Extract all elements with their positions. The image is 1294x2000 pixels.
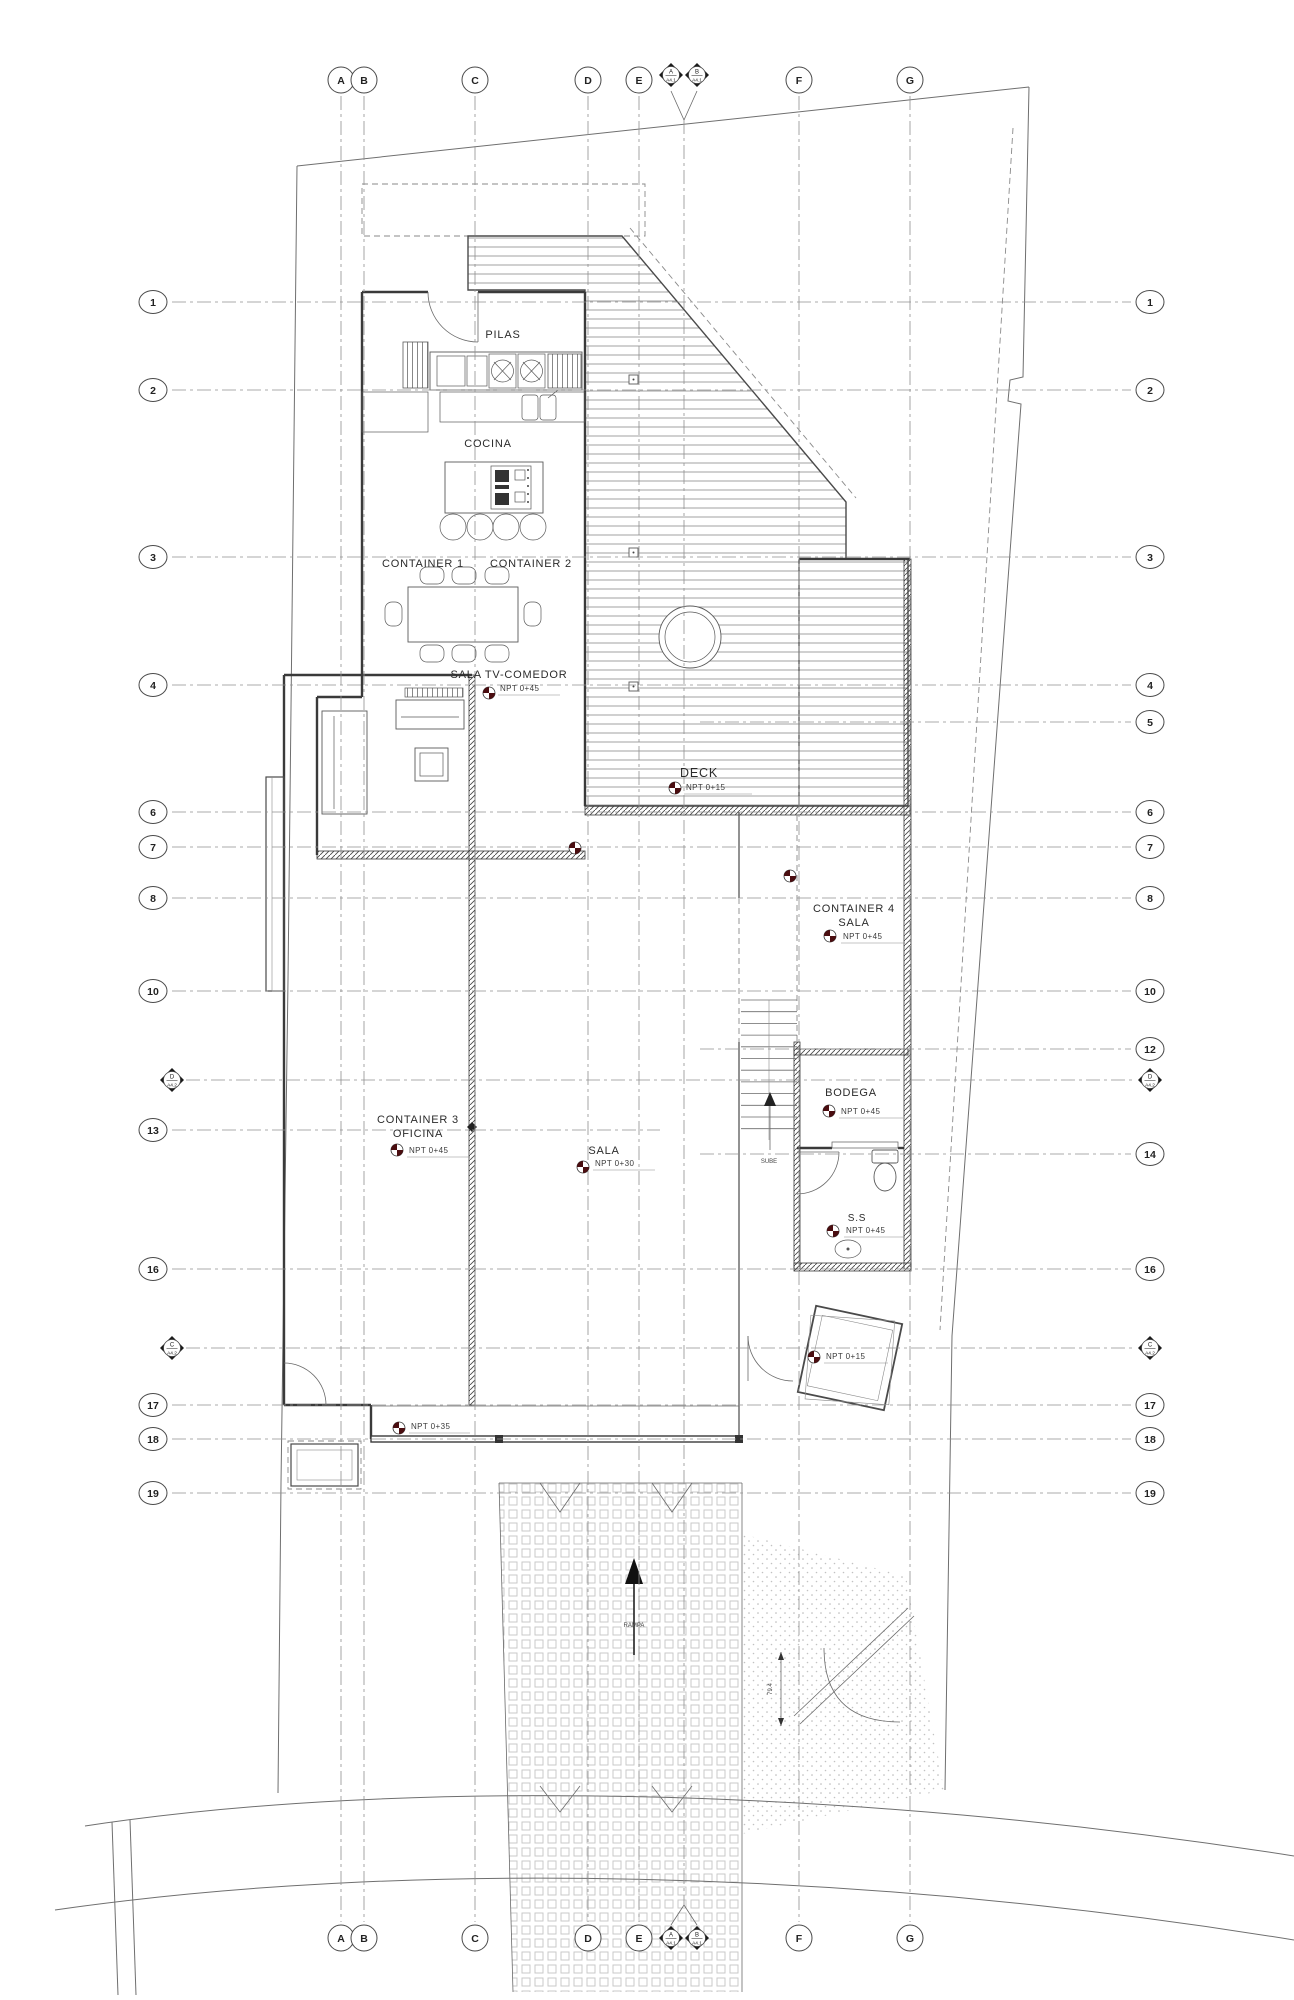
room-label-sala: SALA bbox=[588, 1145, 619, 1157]
svg-text:D: D bbox=[584, 1933, 592, 1945]
room-label-container1: CONTAINER 1 bbox=[382, 558, 464, 570]
grid-bubble-1-right: 1 bbox=[1136, 291, 1164, 314]
grid-bubble-19-left: 19 bbox=[139, 1482, 167, 1505]
island-stools bbox=[440, 514, 546, 540]
svg-text:G: G bbox=[906, 75, 914, 87]
svg-text:2: 2 bbox=[150, 385, 156, 397]
grid-bubble-6-left: 6 bbox=[139, 801, 167, 824]
npt-level-icon bbox=[784, 870, 796, 882]
section-marker-B-top: BA4.1 bbox=[685, 63, 709, 87]
label-sube: SUBE bbox=[761, 1159, 777, 1165]
sofa-long bbox=[322, 711, 367, 814]
section-marker-D-left: DA4.2 bbox=[160, 1068, 184, 1092]
npt-level-icon bbox=[824, 930, 836, 942]
dining-table bbox=[408, 587, 518, 642]
sofa-short bbox=[396, 700, 464, 729]
wall-hatched-deck-south bbox=[585, 806, 910, 815]
svg-text:12: 12 bbox=[1144, 1044, 1156, 1056]
svg-text:G: G bbox=[906, 1933, 914, 1945]
svg-text:A4.1: A4.1 bbox=[666, 1941, 676, 1947]
npt-bodega: NPT 0+45 bbox=[841, 1107, 880, 1116]
grid-bubble-2-left: 2 bbox=[139, 379, 167, 402]
grid-bubble-16-right: 16 bbox=[1136, 1258, 1164, 1281]
svg-text:A4.1: A4.1 bbox=[692, 1941, 702, 1947]
bath-sink bbox=[835, 1240, 861, 1258]
grid-bubble-E-bottom: E bbox=[626, 1925, 652, 1951]
svg-text:7: 7 bbox=[1147, 842, 1153, 854]
svg-text:F: F bbox=[796, 75, 803, 87]
npt-vestibule: NPT 0+35 bbox=[411, 1422, 450, 1431]
grid-bubble-10-right: 10 bbox=[1136, 980, 1164, 1003]
grid-bubble-14-right: 14 bbox=[1136, 1143, 1164, 1166]
grid-bubble-2-right: 2 bbox=[1136, 379, 1164, 402]
npt-level-icon bbox=[391, 1144, 403, 1156]
section-marker-A-top: AA4.1 bbox=[659, 63, 683, 87]
svg-text:7: 7 bbox=[150, 842, 156, 854]
grid-bubble-3-right: 3 bbox=[1136, 546, 1164, 569]
svg-text:3: 3 bbox=[150, 552, 156, 564]
grid-bubble-19-right: 19 bbox=[1136, 1482, 1164, 1505]
svg-text:5: 5 bbox=[1147, 717, 1153, 729]
entry-porch bbox=[291, 1444, 358, 1486]
svg-text:A4.2: A4.2 bbox=[1145, 1083, 1155, 1089]
svg-text:A4.1: A4.1 bbox=[692, 78, 702, 84]
svg-text:A: A bbox=[669, 70, 673, 76]
grid-bubble-7-right: 7 bbox=[1136, 836, 1164, 859]
grid-bubble-C-bottom: C bbox=[462, 1925, 488, 1951]
grid-bubble-D-top: D bbox=[575, 67, 601, 93]
grid-bubble-8-right: 8 bbox=[1136, 887, 1164, 910]
door-arc-office bbox=[284, 1363, 326, 1405]
svg-text:10: 10 bbox=[1144, 986, 1156, 998]
svg-text:19: 19 bbox=[1144, 1488, 1156, 1500]
svg-text:A: A bbox=[669, 1933, 673, 1939]
svg-text:4: 4 bbox=[1147, 680, 1153, 692]
svg-text:3: 3 bbox=[1147, 552, 1153, 564]
svg-text:A4.2: A4.2 bbox=[1145, 1351, 1155, 1357]
section-marker-D-right: DA4.2 bbox=[1138, 1068, 1162, 1092]
svg-text:8: 8 bbox=[150, 893, 156, 905]
wall-hatched-south bbox=[317, 851, 585, 859]
office-block bbox=[266, 675, 477, 1486]
dish-rack bbox=[548, 354, 581, 388]
svg-text:10: 10 bbox=[147, 986, 159, 998]
wall-c-hatched bbox=[469, 675, 475, 1405]
door-arc-kitchen bbox=[428, 292, 478, 342]
svg-text:8: 8 bbox=[1147, 893, 1153, 905]
room-label-container4: CONTAINER 4 bbox=[813, 903, 895, 915]
grid-bubble-6-right: 6 bbox=[1136, 801, 1164, 824]
bodega-top-wall bbox=[794, 1049, 908, 1055]
svg-text:A4.2: A4.2 bbox=[167, 1351, 177, 1357]
room-label-cocina: COCINA bbox=[464, 438, 512, 450]
grid-bubble-A-bottom: A bbox=[328, 1925, 354, 1951]
section-marker-C-right: CA4.2 bbox=[1138, 1336, 1162, 1360]
staircase bbox=[741, 1000, 797, 1140]
label-rampa: RAMPA bbox=[624, 1623, 645, 1629]
svg-text:B: B bbox=[360, 1933, 368, 1945]
ss-south-wall bbox=[794, 1263, 911, 1271]
room-label-deck: DECK bbox=[680, 766, 718, 780]
floor-plan: AABBCCDDEEFFGG11223344566778810101213141… bbox=[0, 0, 1294, 2000]
svg-text:17: 17 bbox=[147, 1400, 159, 1412]
npt-level-icon bbox=[808, 1351, 820, 1363]
npt-sala-tv: NPT 0+45 bbox=[500, 684, 539, 693]
svg-text:18: 18 bbox=[147, 1434, 159, 1446]
svg-text:D: D bbox=[1148, 1075, 1153, 1081]
grid-bubble-3-left: 3 bbox=[139, 546, 167, 569]
svg-text:19: 19 bbox=[147, 1488, 159, 1500]
window-band bbox=[405, 688, 463, 697]
svg-text:E: E bbox=[635, 1933, 642, 1945]
svg-text:B: B bbox=[695, 1933, 699, 1939]
svg-text:A4.2: A4.2 bbox=[167, 1083, 177, 1089]
npt-level-icon bbox=[393, 1422, 405, 1434]
svg-text:14: 14 bbox=[1144, 1149, 1156, 1161]
door-arc-entry bbox=[748, 1336, 793, 1381]
svg-text:B: B bbox=[695, 70, 699, 76]
dining-set bbox=[385, 567, 541, 662]
counter-left bbox=[362, 392, 428, 432]
room-label-container3-sub: OFICINA bbox=[393, 1128, 443, 1140]
grid-bubble-B-top: B bbox=[351, 67, 377, 93]
grid-bubble-17-left: 17 bbox=[139, 1394, 167, 1417]
room-label-container3: CONTAINER 3 bbox=[377, 1114, 459, 1126]
npt-ss: NPT 0+45 bbox=[846, 1226, 885, 1235]
grid-bubble-10-left: 10 bbox=[139, 980, 167, 1003]
npt-container3: NPT 0+45 bbox=[409, 1146, 448, 1155]
npt-entry: NPT 0+15 bbox=[826, 1352, 865, 1361]
svg-text:1: 1 bbox=[150, 297, 156, 309]
grid-bubble-1-left: 1 bbox=[139, 291, 167, 314]
grid-bubble-16-left: 16 bbox=[139, 1258, 167, 1281]
bodega-door bbox=[832, 1142, 898, 1148]
grid-bubble-8-left: 8 bbox=[139, 887, 167, 910]
grid-bubble-F-bottom: F bbox=[786, 1925, 812, 1951]
grid-bubble-5-right: 5 bbox=[1136, 711, 1164, 734]
porch-outline bbox=[288, 1441, 361, 1489]
kitchen-island bbox=[445, 462, 543, 513]
sink-basin-2 bbox=[540, 395, 556, 420]
npt-level-icon bbox=[577, 1161, 589, 1173]
svg-text:4: 4 bbox=[150, 680, 156, 692]
grid-bubble-F-top: F bbox=[786, 67, 812, 93]
grid-bubble-18-right: 18 bbox=[1136, 1428, 1164, 1451]
npt-level-icon bbox=[827, 1225, 839, 1237]
npt-level-icon bbox=[823, 1105, 835, 1117]
svg-text:2: 2 bbox=[1147, 385, 1153, 397]
svg-text:16: 16 bbox=[147, 1264, 159, 1276]
grid-bubble-E-top: E bbox=[626, 67, 652, 93]
driveway bbox=[499, 1483, 742, 1992]
fridge bbox=[403, 342, 428, 388]
side-bay bbox=[266, 777, 284, 991]
svg-text:F: F bbox=[796, 1933, 803, 1945]
wall-tag bbox=[467, 1122, 477, 1132]
room-label-pilas: PILAS bbox=[485, 329, 520, 341]
grid-bubble-4-right: 4 bbox=[1136, 674, 1164, 697]
deck-floor bbox=[468, 236, 908, 806]
svg-text:1: 1 bbox=[1147, 297, 1153, 309]
svg-text:D: D bbox=[584, 75, 592, 87]
npt-level-icon bbox=[669, 782, 681, 794]
sink-basin-1 bbox=[522, 395, 538, 420]
grid-bubble-A-top: A bbox=[328, 67, 354, 93]
room-label-bodega: BODEGA bbox=[825, 1087, 877, 1099]
section-marker-C-left: CA4.2 bbox=[160, 1336, 184, 1360]
grid-bubble-13-left: 13 bbox=[139, 1119, 167, 1142]
toilet bbox=[872, 1150, 898, 1191]
up-arrow-icon bbox=[764, 1092, 776, 1106]
grid-bubble-D-bottom: D bbox=[575, 1925, 601, 1951]
room-label-container4-sub: SALA bbox=[838, 917, 869, 929]
room-label-sala-tv: SALA TV-COMEDOR bbox=[451, 669, 568, 681]
grid-bubble-G-top: G bbox=[897, 67, 923, 93]
grid-bubble-12-right: 12 bbox=[1136, 1038, 1164, 1061]
npt-container4: NPT 0+45 bbox=[843, 932, 882, 941]
svg-text:17: 17 bbox=[1144, 1400, 1156, 1412]
svg-text:D: D bbox=[170, 1075, 175, 1081]
svg-text:13: 13 bbox=[147, 1125, 159, 1137]
svg-text:C: C bbox=[471, 1933, 479, 1945]
setback-line bbox=[940, 128, 1013, 1330]
door-arc-ss bbox=[797, 1152, 839, 1194]
svg-text:E: E bbox=[635, 75, 642, 87]
svg-text:A: A bbox=[337, 75, 345, 87]
npt-sala: NPT 0+30 bbox=[595, 1159, 634, 1168]
stair-arrow bbox=[764, 1092, 776, 1150]
grid-bubble-G-bottom: G bbox=[897, 1925, 923, 1951]
svg-text:B: B bbox=[360, 75, 368, 87]
grid-bubble-C-top: C bbox=[462, 67, 488, 93]
counter-sink-band bbox=[440, 392, 585, 422]
deck-tub bbox=[659, 606, 721, 668]
room-label-container2: CONTAINER 2 bbox=[490, 558, 572, 570]
svg-text:C: C bbox=[471, 75, 479, 87]
deck-area bbox=[468, 236, 908, 806]
tv-lounge bbox=[322, 700, 464, 814]
svg-text:C: C bbox=[1148, 1343, 1153, 1349]
svg-text:C: C bbox=[170, 1343, 175, 1349]
grid-bubble-4-left: 4 bbox=[139, 674, 167, 697]
svg-text:18: 18 bbox=[1144, 1434, 1156, 1446]
label-dimension: 79.4 bbox=[768, 1683, 774, 1695]
svg-text:6: 6 bbox=[1147, 807, 1153, 819]
svg-text:A: A bbox=[337, 1933, 345, 1945]
npt-level-icon bbox=[483, 687, 495, 699]
svg-text:6: 6 bbox=[150, 807, 156, 819]
npt-level-icon bbox=[569, 842, 581, 854]
svg-text:16: 16 bbox=[1144, 1264, 1156, 1276]
npt-deck: NPT 0+15 bbox=[686, 783, 725, 792]
grid-bubble-18-left: 18 bbox=[139, 1428, 167, 1451]
svg-text:A4.1: A4.1 bbox=[666, 78, 676, 84]
grid-bubble-7-left: 7 bbox=[139, 836, 167, 859]
room-label-ss: S.S bbox=[848, 1213, 867, 1224]
grid-bubble-17-right: 17 bbox=[1136, 1394, 1164, 1417]
grid-bubble-B-bottom: B bbox=[351, 1925, 377, 1951]
